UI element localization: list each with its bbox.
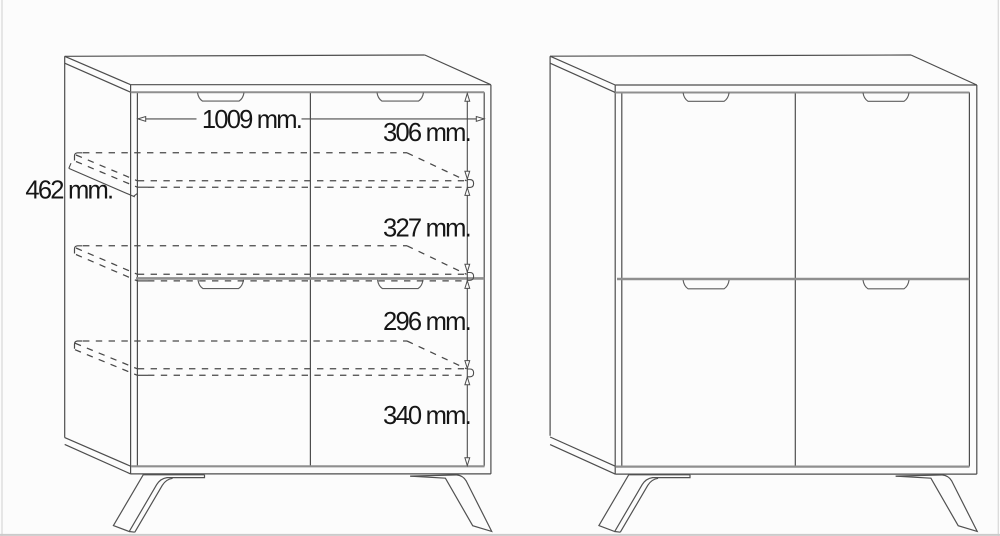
svg-text:327 mm.: 327 mm. [383,214,470,242]
svg-text:1009 mm.: 1009 mm. [202,106,301,134]
svg-text:340 mm.: 340 mm. [383,402,470,430]
svg-text:462 mm.: 462 mm. [25,176,112,204]
svg-text:306 mm.: 306 mm. [383,119,470,147]
svg-text:296 mm.: 296 mm. [383,308,470,336]
